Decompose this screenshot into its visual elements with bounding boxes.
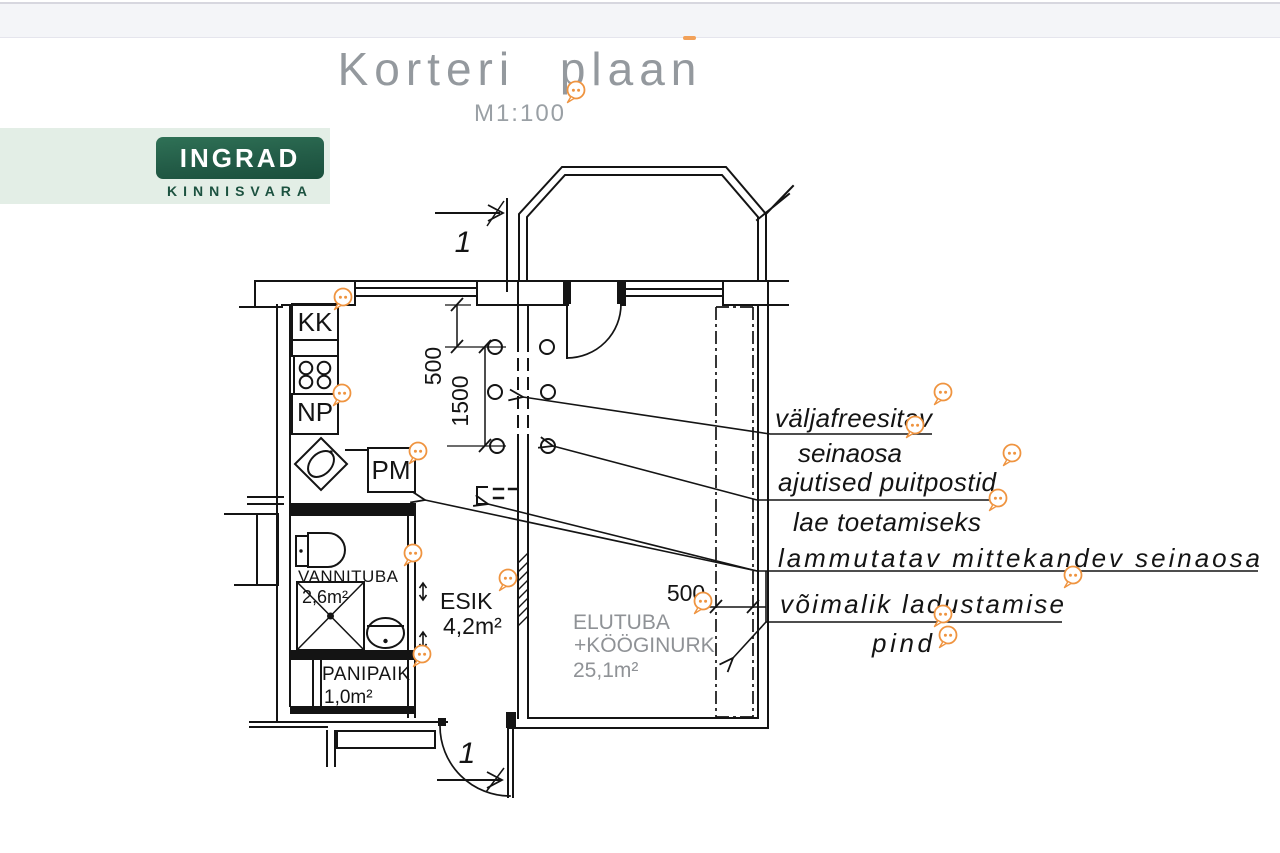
post [541,385,555,399]
shower-drain [327,613,334,620]
sliding-door-arrow [420,583,427,600]
dim-label-1500: 1500 [447,375,473,426]
bathroom-right-wall [408,516,415,662]
floor-plan: KK NP PM VANNITUBA 2,6m² ESIK 4,2m² PANI… [0,0,1280,853]
section-number-top: 1 [455,226,472,259]
dim-label-500: 500 [420,347,446,385]
comment-marker-icon[interactable] [695,593,712,614]
comment-marker-icon[interactable] [334,385,351,406]
neighbor-bay-lines [757,186,793,220]
post [540,340,554,354]
room-label-elutuba-2: +KÖÖGINURK [574,634,715,657]
stove-burner [300,362,313,375]
entrance-door-leaf [508,723,513,797]
balcony-door-jamb [563,282,571,304]
support-bracket [477,487,487,504]
comment-marker-icon[interactable] [1065,567,1082,588]
shaft [257,514,278,585]
comment-marker-icon[interactable] [335,289,352,310]
room-area-panipaik: 1,0m² [324,687,373,708]
stove-burner [318,362,331,375]
support-dashes [494,489,516,498]
plan-labels: KK NP PM VANNITUBA 2,6m² ESIK 4,2m² PANI… [297,226,1260,770]
balcony-door-jamb [617,282,625,304]
kitchen-sink-cabinet [295,438,347,490]
leader-demolish-wall [425,500,757,571]
section-number-bottom: 1 [459,737,476,770]
toilet-bowl [308,533,345,567]
panipaik-left-wall [313,660,321,706]
bathroom-fixtures [290,503,427,718]
living-window [625,289,723,296]
comment-marker-icon[interactable] [410,443,427,464]
fixture-label-np: NP [297,397,333,427]
comment-marker-icon[interactable] [405,545,422,566]
post [541,439,555,453]
room-label-panipaik: PANIPAIK [322,664,410,685]
corridor-wall [337,731,435,748]
stove-burner [300,376,313,389]
comment-marker-icon[interactable] [990,490,1007,511]
interior-wall-hatch [518,553,528,626]
fixture-label-kk: KK [298,307,333,337]
interior-wall-solid [518,281,528,340]
room-label-elutuba: ELUTUBA [573,611,670,634]
corridor-pier [327,731,335,766]
sink-tap [329,450,332,453]
post [488,385,502,399]
comment-marker-icon[interactable] [935,606,952,627]
bathroom-bottom-wall [290,650,416,660]
kitchen-window [355,288,477,296]
annotation-storage-line1: võimalik ladustamise [780,589,1064,619]
wall-bottom-left [250,722,447,727]
room-area-elutuba: 25,1m² [573,659,638,682]
annotation-ceiling-support: lae toetamiseks [793,507,981,537]
shaft-stub [225,514,257,585]
comment-marker-icon[interactable] [414,646,431,667]
comment-marker-icon[interactable] [1004,445,1021,466]
temporary-posts [488,340,555,453]
room-label-vannituba: VANNITUBA [298,567,399,586]
comment-marker-icon[interactable] [940,627,957,648]
washbasin [367,618,404,648]
leader-temp-posts [553,446,757,500]
annotation-demolish-wall: lammutatav mittekandev seinaosa [778,543,1260,573]
walls [225,167,793,797]
comment-marker-icon[interactable] [935,384,952,405]
stove-burner [318,376,331,389]
room-area-vannituba: 2,6m² [302,587,348,607]
annotation-milled-line2: seinaosa [798,438,902,468]
window-jambs [355,281,723,305]
leader-storage [733,622,766,658]
washbasin-drain [383,639,387,643]
balcony-door-arc [567,304,621,358]
toilet-button [299,549,302,552]
counter-segment [292,340,338,356]
interior-wall-dashed [518,340,528,440]
fixture-label-pm: PM [372,455,411,485]
comment-marker-icon[interactable] [500,570,517,591]
bathroom-top-wall [290,503,416,516]
annotation-temp-posts: ajutised puitpostid [778,467,998,497]
room-label-esik: ESIK [440,588,493,614]
comment-marker-icon[interactable] [568,82,585,103]
leader-milled-wall [523,397,770,434]
annotation-storage-line2: pind [871,628,934,658]
bay-window-inner [527,175,758,281]
room-area-esik: 4,2m² [443,613,502,639]
stove [294,356,338,394]
comment-marker-partial[interactable] [683,36,696,40]
dimensions [445,298,766,613]
